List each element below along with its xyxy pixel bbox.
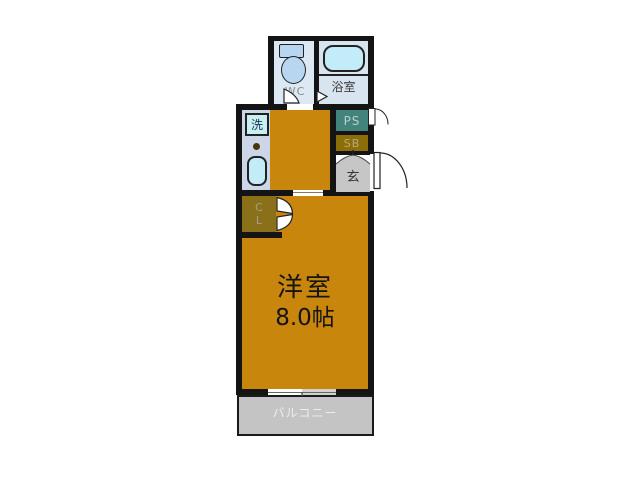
western-room-size: 8.0帖 [242, 302, 368, 328]
wc-label: WC [278, 84, 312, 98]
western-room-name: 洋室 [242, 270, 368, 300]
shoe-box: SB [336, 135, 368, 151]
toilet-bowl-icon [281, 56, 306, 84]
closet-label-line1: C [255, 201, 263, 214]
balcony-label: バルコニー [242, 403, 368, 421]
ps-hatch-swing [375, 109, 388, 125]
bathroom-divider-line [319, 74, 368, 76]
entrance-door-leaf [374, 153, 380, 189]
washing-machine-icon: 洗 [245, 113, 269, 136]
bathroom-label: 浴室 [321, 79, 366, 94]
entrance-door-swing [380, 153, 407, 188]
closet-bottom-wall [236, 232, 282, 238]
stove-burner-icon [253, 143, 260, 150]
closet: C L [242, 196, 276, 232]
floor-plan: WC 浴室 洗 PS SB 玄 C L 洋室 8.0帖 バルコニー [0, 0, 640, 480]
kitchen-sink-icon [247, 156, 267, 186]
closet-label-line2: L [256, 214, 262, 227]
entrance-label: 玄 [339, 164, 367, 186]
bathtub-icon [323, 45, 365, 72]
pipe-space: PS [336, 110, 368, 131]
entrance-doorway-opening [370, 154, 374, 191]
